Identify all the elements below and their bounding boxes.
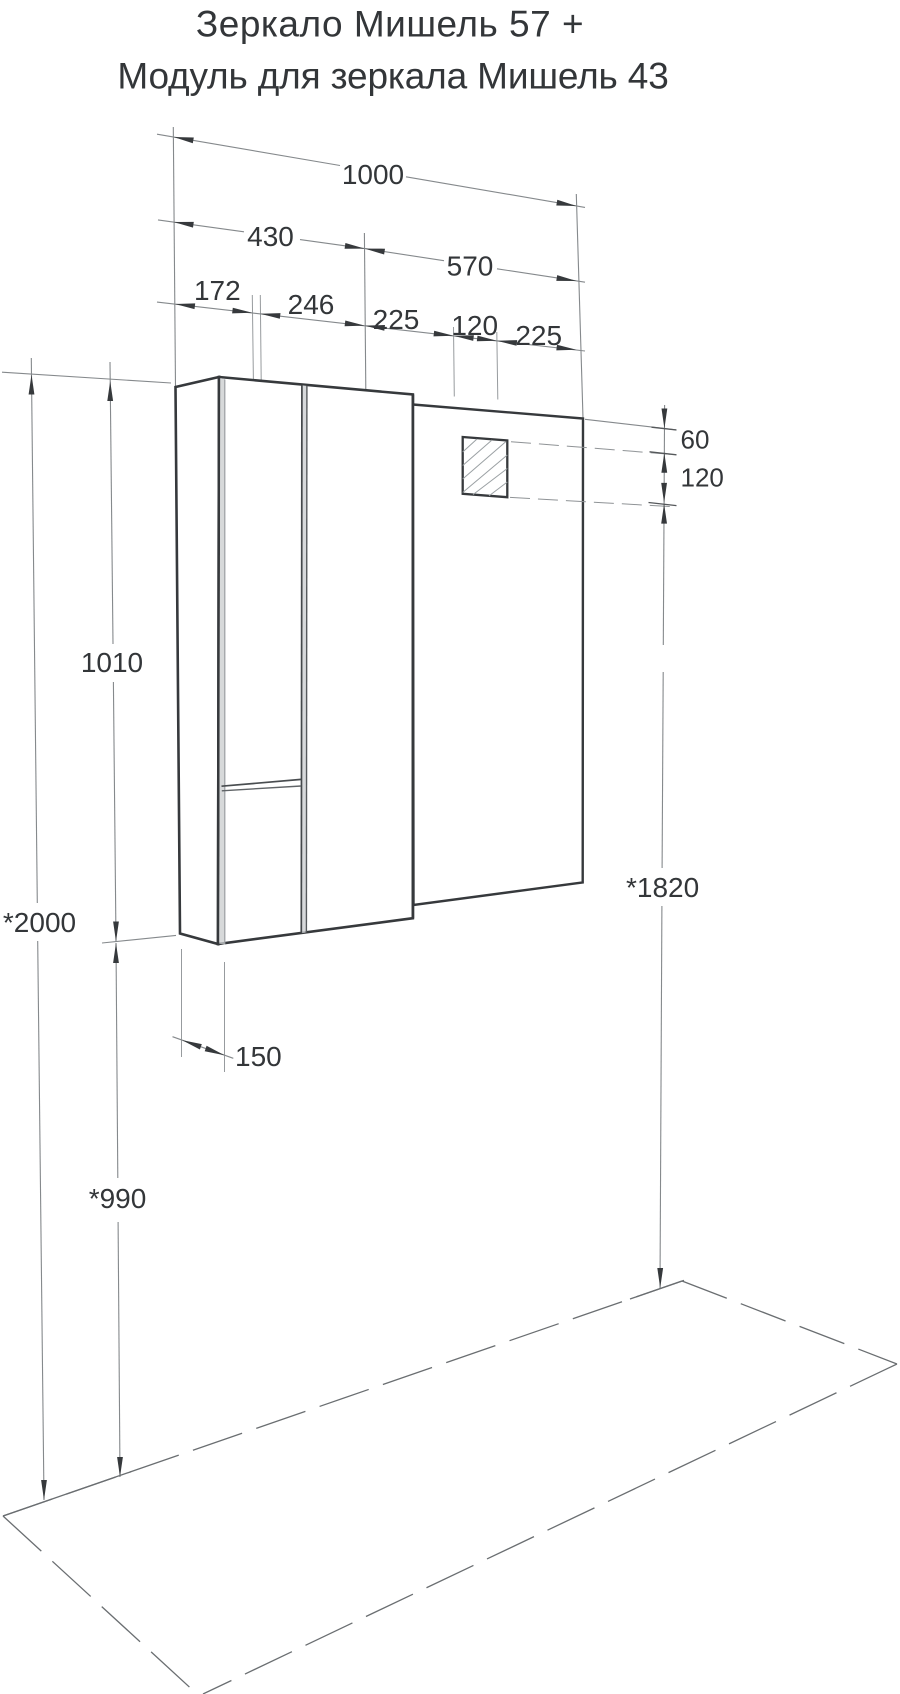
svg-text:120: 120 xyxy=(451,310,498,341)
svg-text:1010: 1010 xyxy=(81,647,143,678)
svg-text:120: 120 xyxy=(681,463,724,493)
svg-text:*990: *990 xyxy=(89,1183,147,1214)
svg-text:Модуль для зеркала Мишель 43: Модуль для зеркала Мишель 43 xyxy=(117,56,668,97)
svg-text:150: 150 xyxy=(235,1041,282,1072)
svg-text:225: 225 xyxy=(515,320,562,351)
svg-text:225: 225 xyxy=(373,304,420,335)
svg-text:570: 570 xyxy=(447,251,494,282)
svg-text:*2000: *2000 xyxy=(3,907,76,938)
svg-text:1000: 1000 xyxy=(342,159,404,190)
svg-text:430: 430 xyxy=(247,221,294,252)
svg-text:172: 172 xyxy=(194,275,241,306)
svg-text:246: 246 xyxy=(288,289,335,320)
svg-text:*1820: *1820 xyxy=(626,872,699,903)
svg-text:Зеркало Мишель 57 +: Зеркало Мишель 57 + xyxy=(196,4,584,45)
svg-text:60: 60 xyxy=(681,425,710,455)
